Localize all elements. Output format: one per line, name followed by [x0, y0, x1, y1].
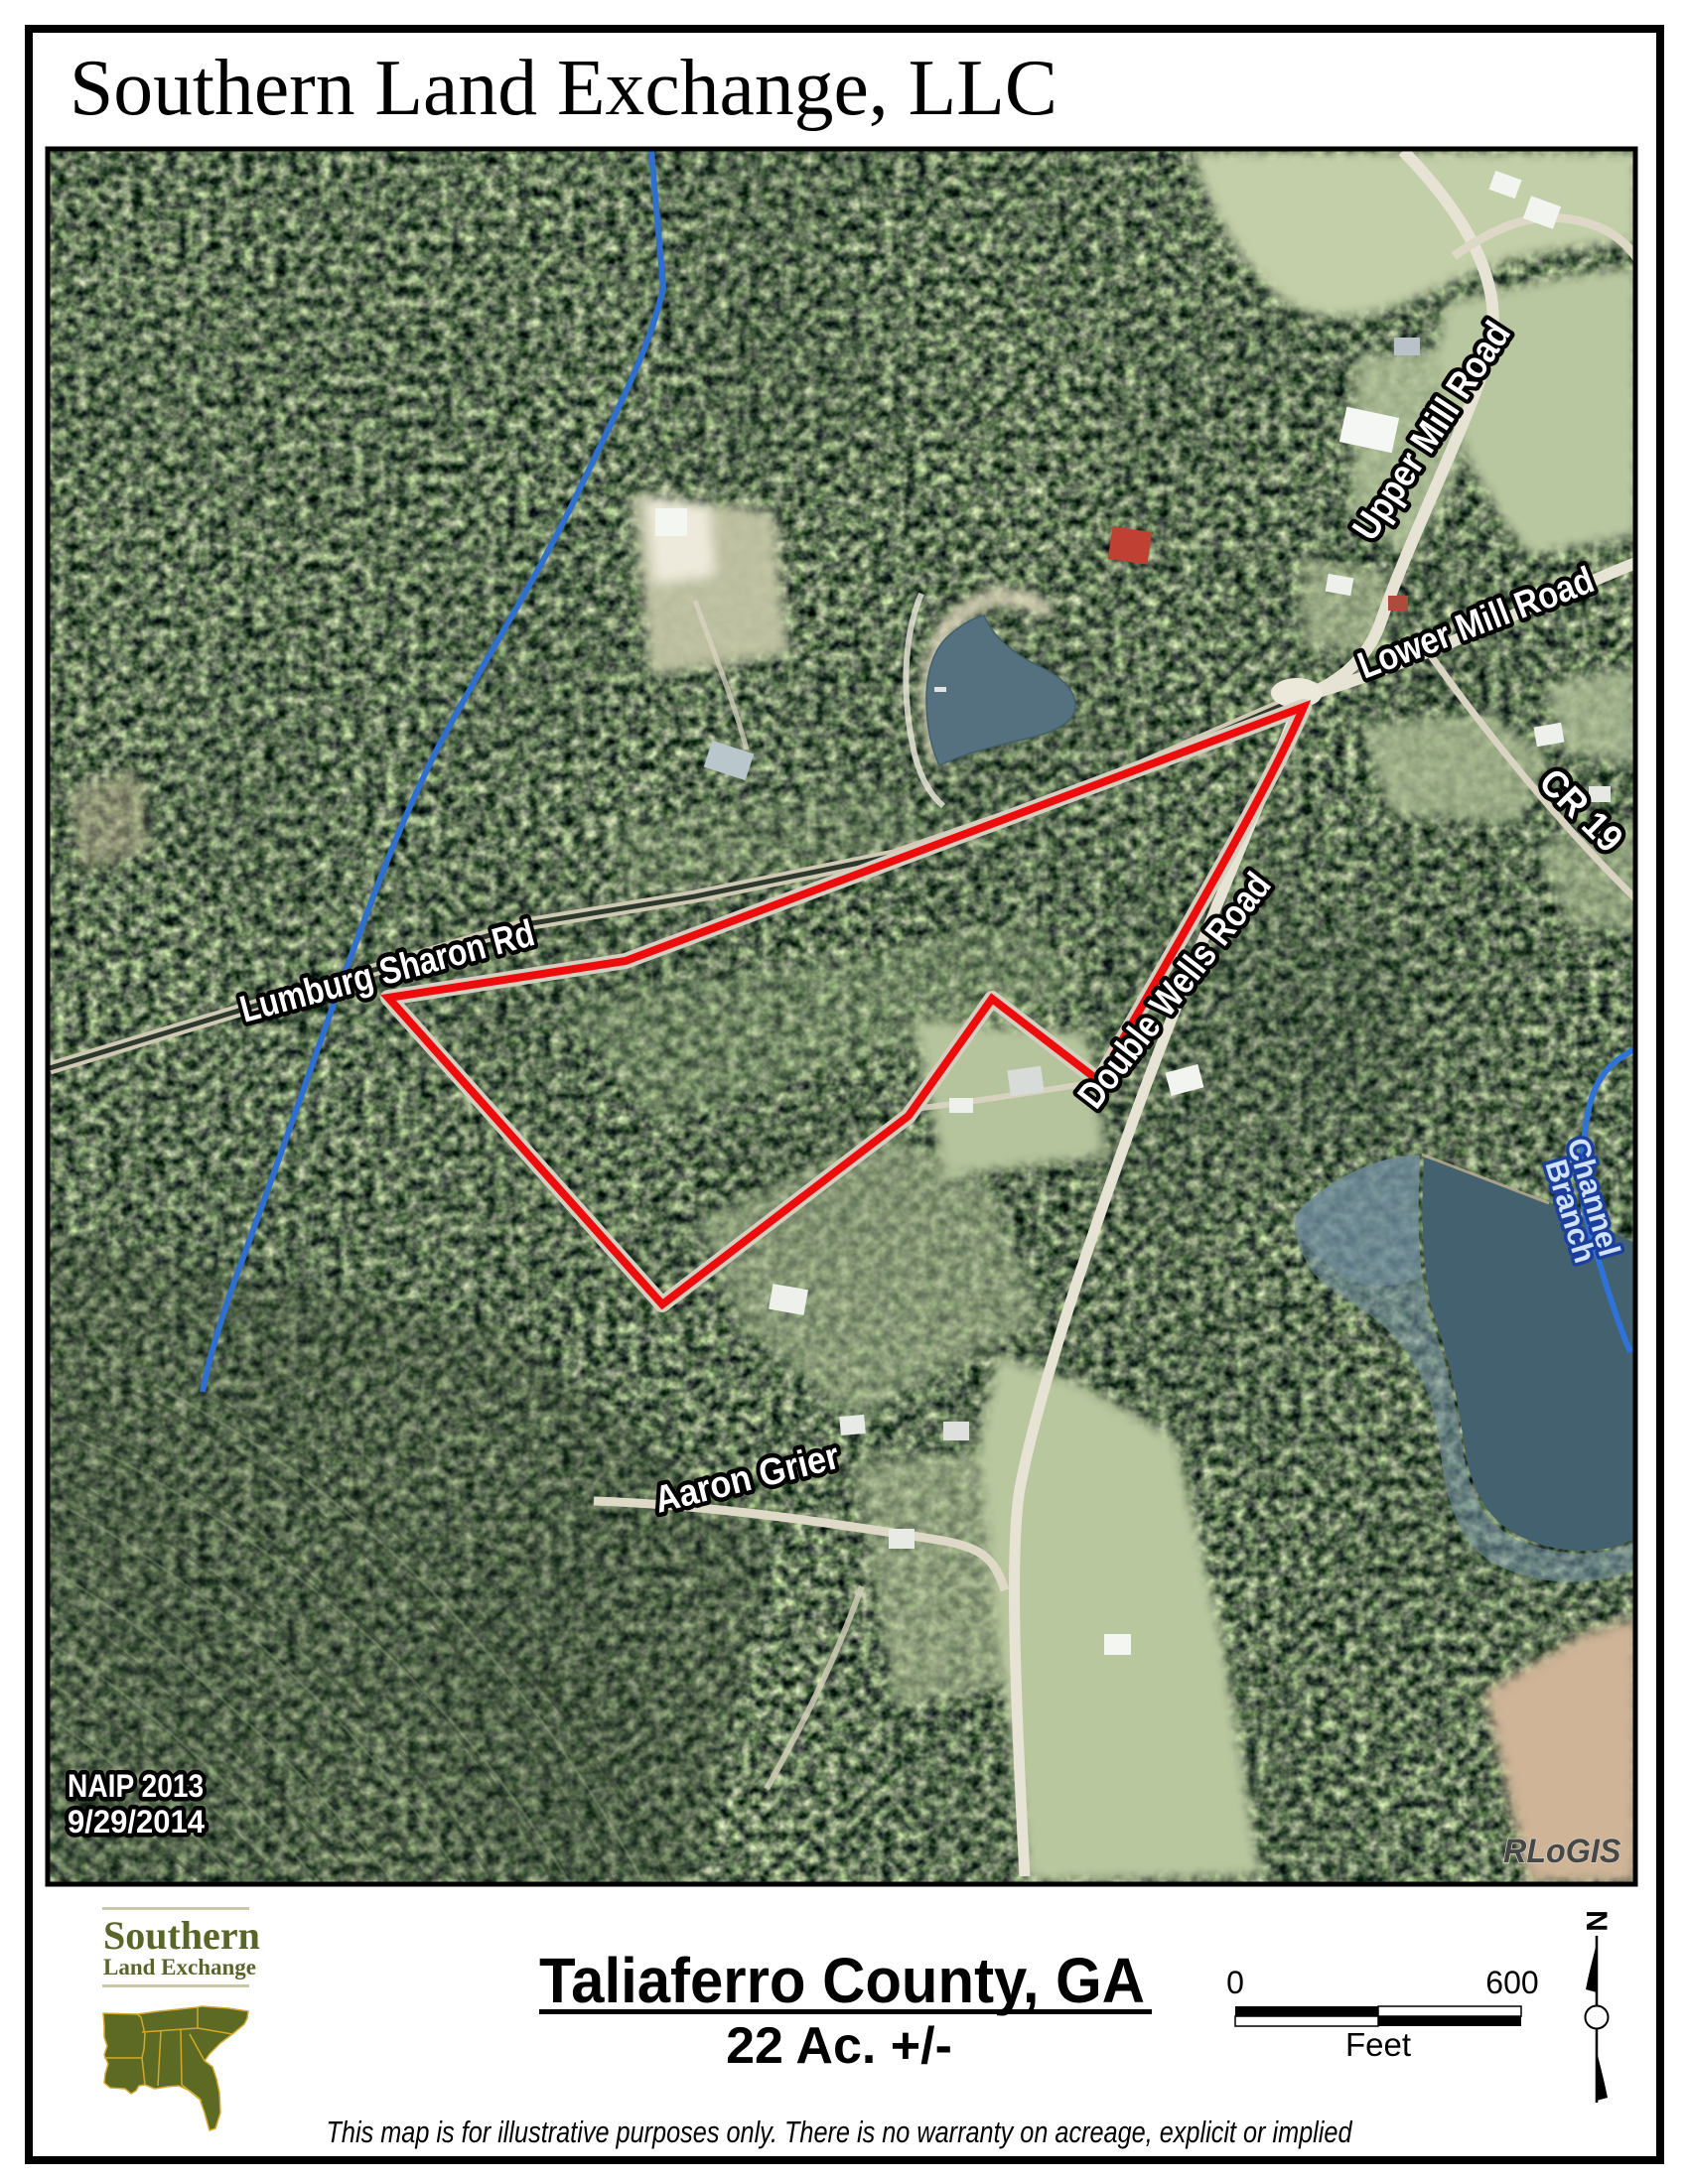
svg-text:RLoGIS: RLoGIS — [1503, 1833, 1620, 1870]
svg-text:9/29/2014: 9/29/2014 — [68, 1804, 206, 1841]
svg-text:NAIP 2013: NAIP 2013 — [68, 1769, 204, 1804]
svg-text:This map is for illustrative p: This map is for illustrative purposes on… — [327, 2115, 1353, 2149]
svg-text:Southern Land Exchange, LLC: Southern Land Exchange, LLC — [70, 45, 1057, 132]
svg-text:Southern: Southern — [103, 1913, 260, 1958]
svg-text:N: N — [1580, 1910, 1613, 1932]
svg-text:Feet: Feet — [1345, 2026, 1411, 2063]
svg-text:600: 600 — [1485, 1965, 1538, 2000]
svg-text:22 Ac. +/-: 22 Ac. +/- — [726, 2017, 952, 2075]
svg-text:0: 0 — [1226, 1965, 1244, 2000]
svg-text:Taliaferro County, GA: Taliaferro County, GA — [539, 1945, 1145, 2016]
svg-text:Land Exchange: Land Exchange — [103, 1955, 256, 1979]
